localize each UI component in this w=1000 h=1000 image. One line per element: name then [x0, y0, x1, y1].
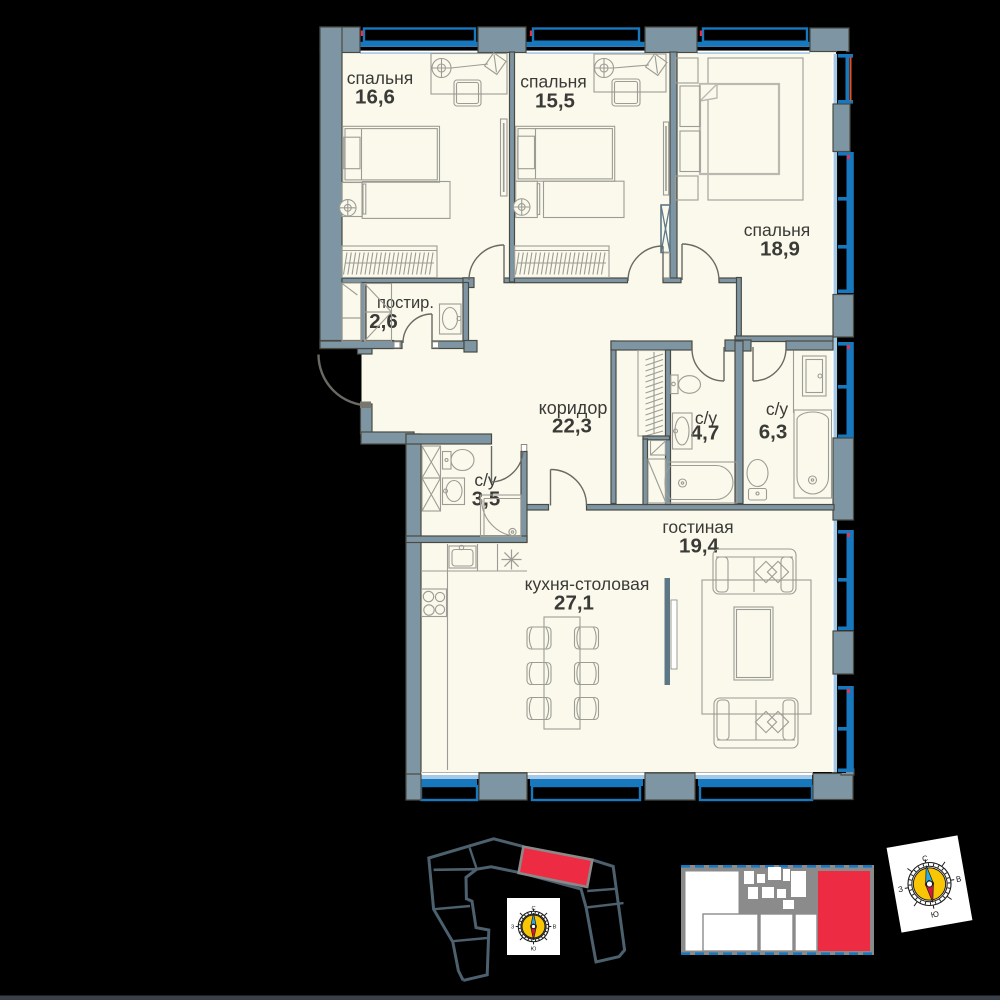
- svg-text:4,7: 4,7: [691, 422, 720, 445]
- svg-text:З: З: [511, 924, 515, 930]
- svg-text:Ю: Ю: [531, 946, 537, 952]
- svg-text:15,5: 15,5: [535, 90, 575, 113]
- svg-text:6,3: 6,3: [759, 421, 788, 444]
- svg-text:С: С: [531, 906, 535, 912]
- svg-text:22,3: 22,3: [552, 415, 592, 438]
- svg-text:18,9: 18,9: [760, 238, 800, 261]
- svg-text:27,1: 27,1: [554, 592, 594, 615]
- svg-text:с/у: с/у: [766, 399, 789, 419]
- svg-text:Ю: Ю: [930, 909, 940, 919]
- svg-text:16,6: 16,6: [355, 86, 395, 109]
- svg-text:спальня: спальня: [520, 72, 586, 92]
- svg-text:2,6: 2,6: [369, 310, 398, 333]
- svg-text:В: В: [553, 924, 557, 930]
